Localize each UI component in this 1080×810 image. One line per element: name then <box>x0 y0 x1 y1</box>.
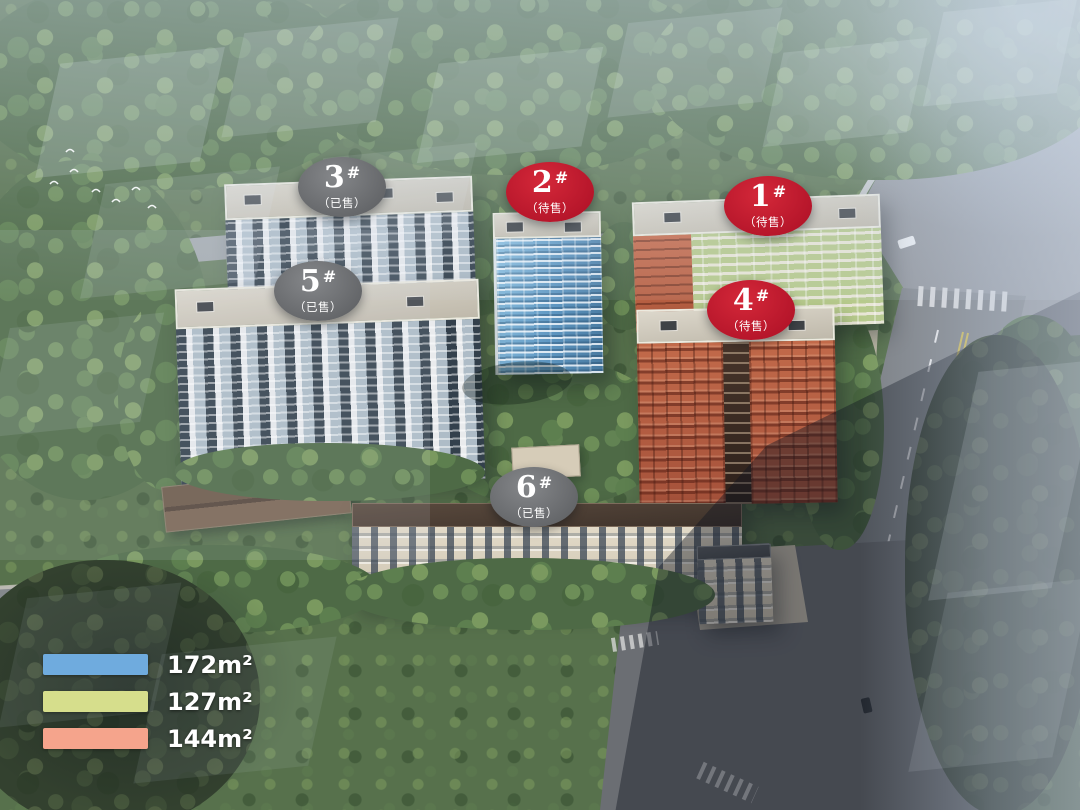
badge-building-5: 5# （已售） <box>274 261 362 321</box>
badge-status: （待售） <box>727 318 775 334</box>
legend-swatch-green <box>43 691 148 712</box>
badge-status: （已售） <box>294 299 342 315</box>
badge-number: 2# <box>532 168 568 198</box>
legend-swatch-salmon <box>43 728 148 749</box>
badge-number: 6# <box>516 473 552 503</box>
legend-label: 172m² <box>167 651 253 679</box>
ghost-block <box>607 7 782 117</box>
badge-number: 5# <box>300 267 336 297</box>
badge-status: （待售） <box>526 200 574 216</box>
legend-label: 144m² <box>167 725 253 753</box>
legend-row: 144m² <box>43 728 253 749</box>
badge-status: （已售） <box>510 505 558 521</box>
legend-swatch-blue <box>43 654 148 675</box>
badge-number: 1# <box>750 182 786 212</box>
ghost-block <box>763 38 928 147</box>
badge-building-1: 1# （待售） <box>724 176 812 236</box>
badge-building-6: 6# （已售） <box>490 467 578 527</box>
badge-status: （已售） <box>318 195 366 211</box>
legend-row: 172m² <box>43 654 253 675</box>
ghost-block <box>923 0 1077 107</box>
ghost-block <box>0 312 164 437</box>
badge-number: 4# <box>733 286 769 316</box>
badge-building-3: 3# （已售） <box>298 157 386 217</box>
legend-label: 127m² <box>167 688 253 716</box>
badge-building-2: 2# （待售） <box>506 162 594 222</box>
badge-status: （待售） <box>744 214 792 230</box>
ghost-block <box>221 17 398 137</box>
badge-number: 3# <box>324 163 360 193</box>
badge-building-4: 4# （待售） <box>707 280 795 340</box>
birds-icon <box>40 140 180 230</box>
aerial-siteplan: 3# （已售） 2# （待售） 1# （待售） 5# （已售） 4# （待售） … <box>0 0 1080 810</box>
unit-size-legend: 172m² 127m² 144m² <box>43 654 253 749</box>
legend-row: 127m² <box>43 691 253 712</box>
